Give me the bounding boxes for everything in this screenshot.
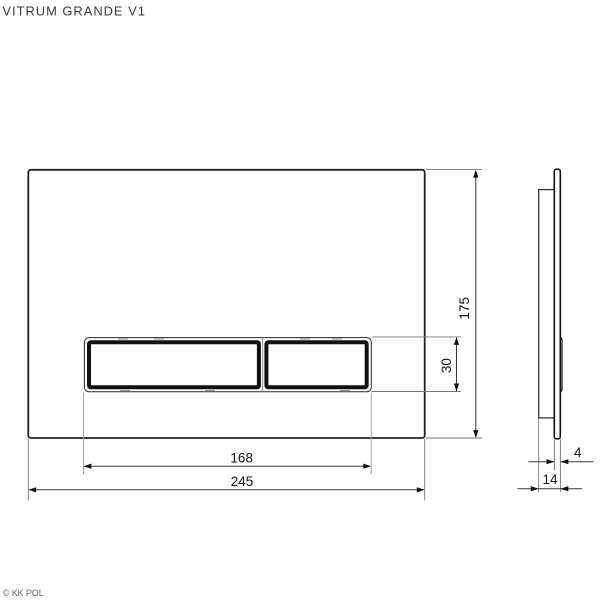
svg-text:© KK POL: © KK POL: [3, 588, 44, 598]
svg-text:VITRUM GRANDE V1: VITRUM GRANDE V1: [2, 4, 146, 19]
svg-text:30: 30: [439, 358, 454, 373]
svg-text:175: 175: [457, 297, 472, 320]
svg-text:168: 168: [230, 450, 253, 465]
svg-text:4: 4: [574, 445, 582, 460]
svg-text:14: 14: [542, 472, 558, 487]
svg-text:245: 245: [231, 474, 254, 489]
